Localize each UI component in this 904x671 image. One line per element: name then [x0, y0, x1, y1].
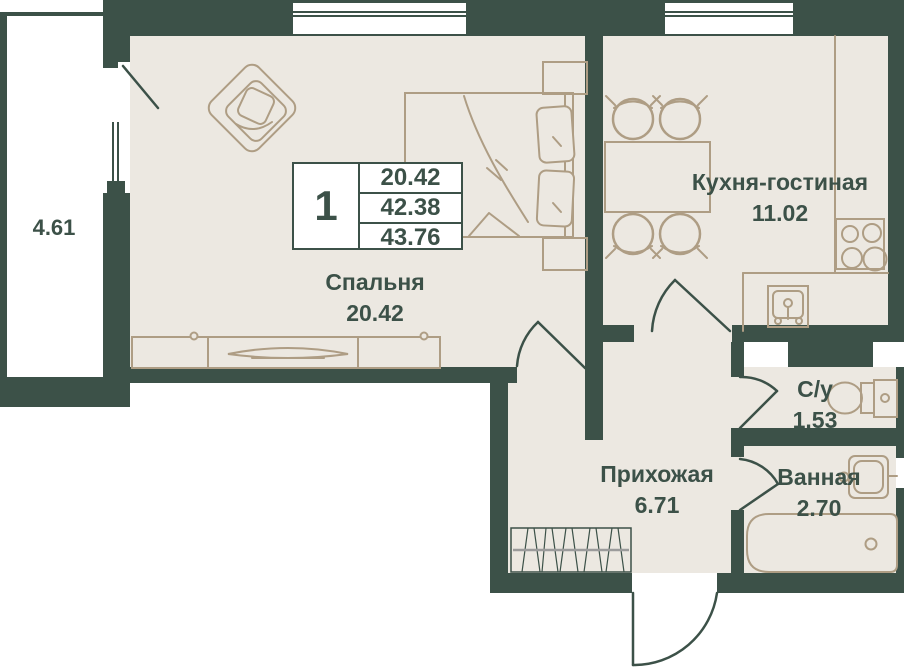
pillow — [537, 170, 575, 227]
hallway-name: Прихожая — [557, 459, 757, 490]
bathroom-name: Ванная — [744, 462, 894, 493]
room-label-bathroom: Ванная 2.70 — [744, 462, 894, 524]
kitchen-sink — [768, 286, 808, 327]
room-label-kitchen: Кухня-гостиная 11.02 — [668, 167, 892, 229]
chair — [606, 214, 660, 258]
hallway-area: 6.71 — [557, 490, 757, 521]
kitchen-name: Кухня-гостиная — [668, 167, 892, 198]
rooms-count: 1 — [294, 164, 360, 248]
room-label-hallway: Прихожая 6.71 — [557, 459, 757, 521]
balcony-area: 4.61 — [12, 212, 96, 243]
room-label-bedroom: Спальня 20.42 — [275, 267, 475, 329]
tv-stand — [132, 333, 440, 369]
blanket-fold — [469, 213, 519, 236]
furniture-layer — [0, 0, 904, 671]
apartment-info-table: 1 20.42 42.38 43.76 — [292, 162, 463, 250]
room-label-wc: С/у 1.53 — [766, 374, 864, 436]
armchair — [205, 61, 300, 156]
kitchen-door — [652, 280, 730, 331]
wc-area: 1.53 — [766, 405, 864, 436]
chair — [653, 96, 707, 139]
room-label-balcony: 4.61 — [12, 212, 96, 243]
area-total: 43.76 — [360, 222, 461, 252]
pillow — [536, 106, 575, 163]
blanket — [464, 96, 528, 222]
bathroom-area: 2.70 — [744, 493, 894, 524]
area-apartment: 42.38 — [360, 192, 461, 222]
balcony-door-leaf — [123, 66, 158, 108]
area-living: 20.42 — [360, 164, 461, 192]
kitchen-area: 11.02 — [668, 198, 892, 229]
floorplan: 1 20.42 42.38 43.76 4.61 Спальня 20.42 К… — [0, 0, 904, 671]
bedroom-name: Спальня — [275, 267, 475, 298]
bedroom-door — [517, 322, 585, 368]
entrance-door — [633, 593, 717, 665]
bedroom-area: 20.42 — [275, 298, 475, 329]
chair — [606, 96, 660, 139]
tv — [228, 348, 348, 358]
wc-name: С/у — [766, 374, 864, 405]
nightstand — [543, 62, 587, 94]
wardrobe — [511, 528, 631, 572]
nightstand — [543, 238, 587, 270]
